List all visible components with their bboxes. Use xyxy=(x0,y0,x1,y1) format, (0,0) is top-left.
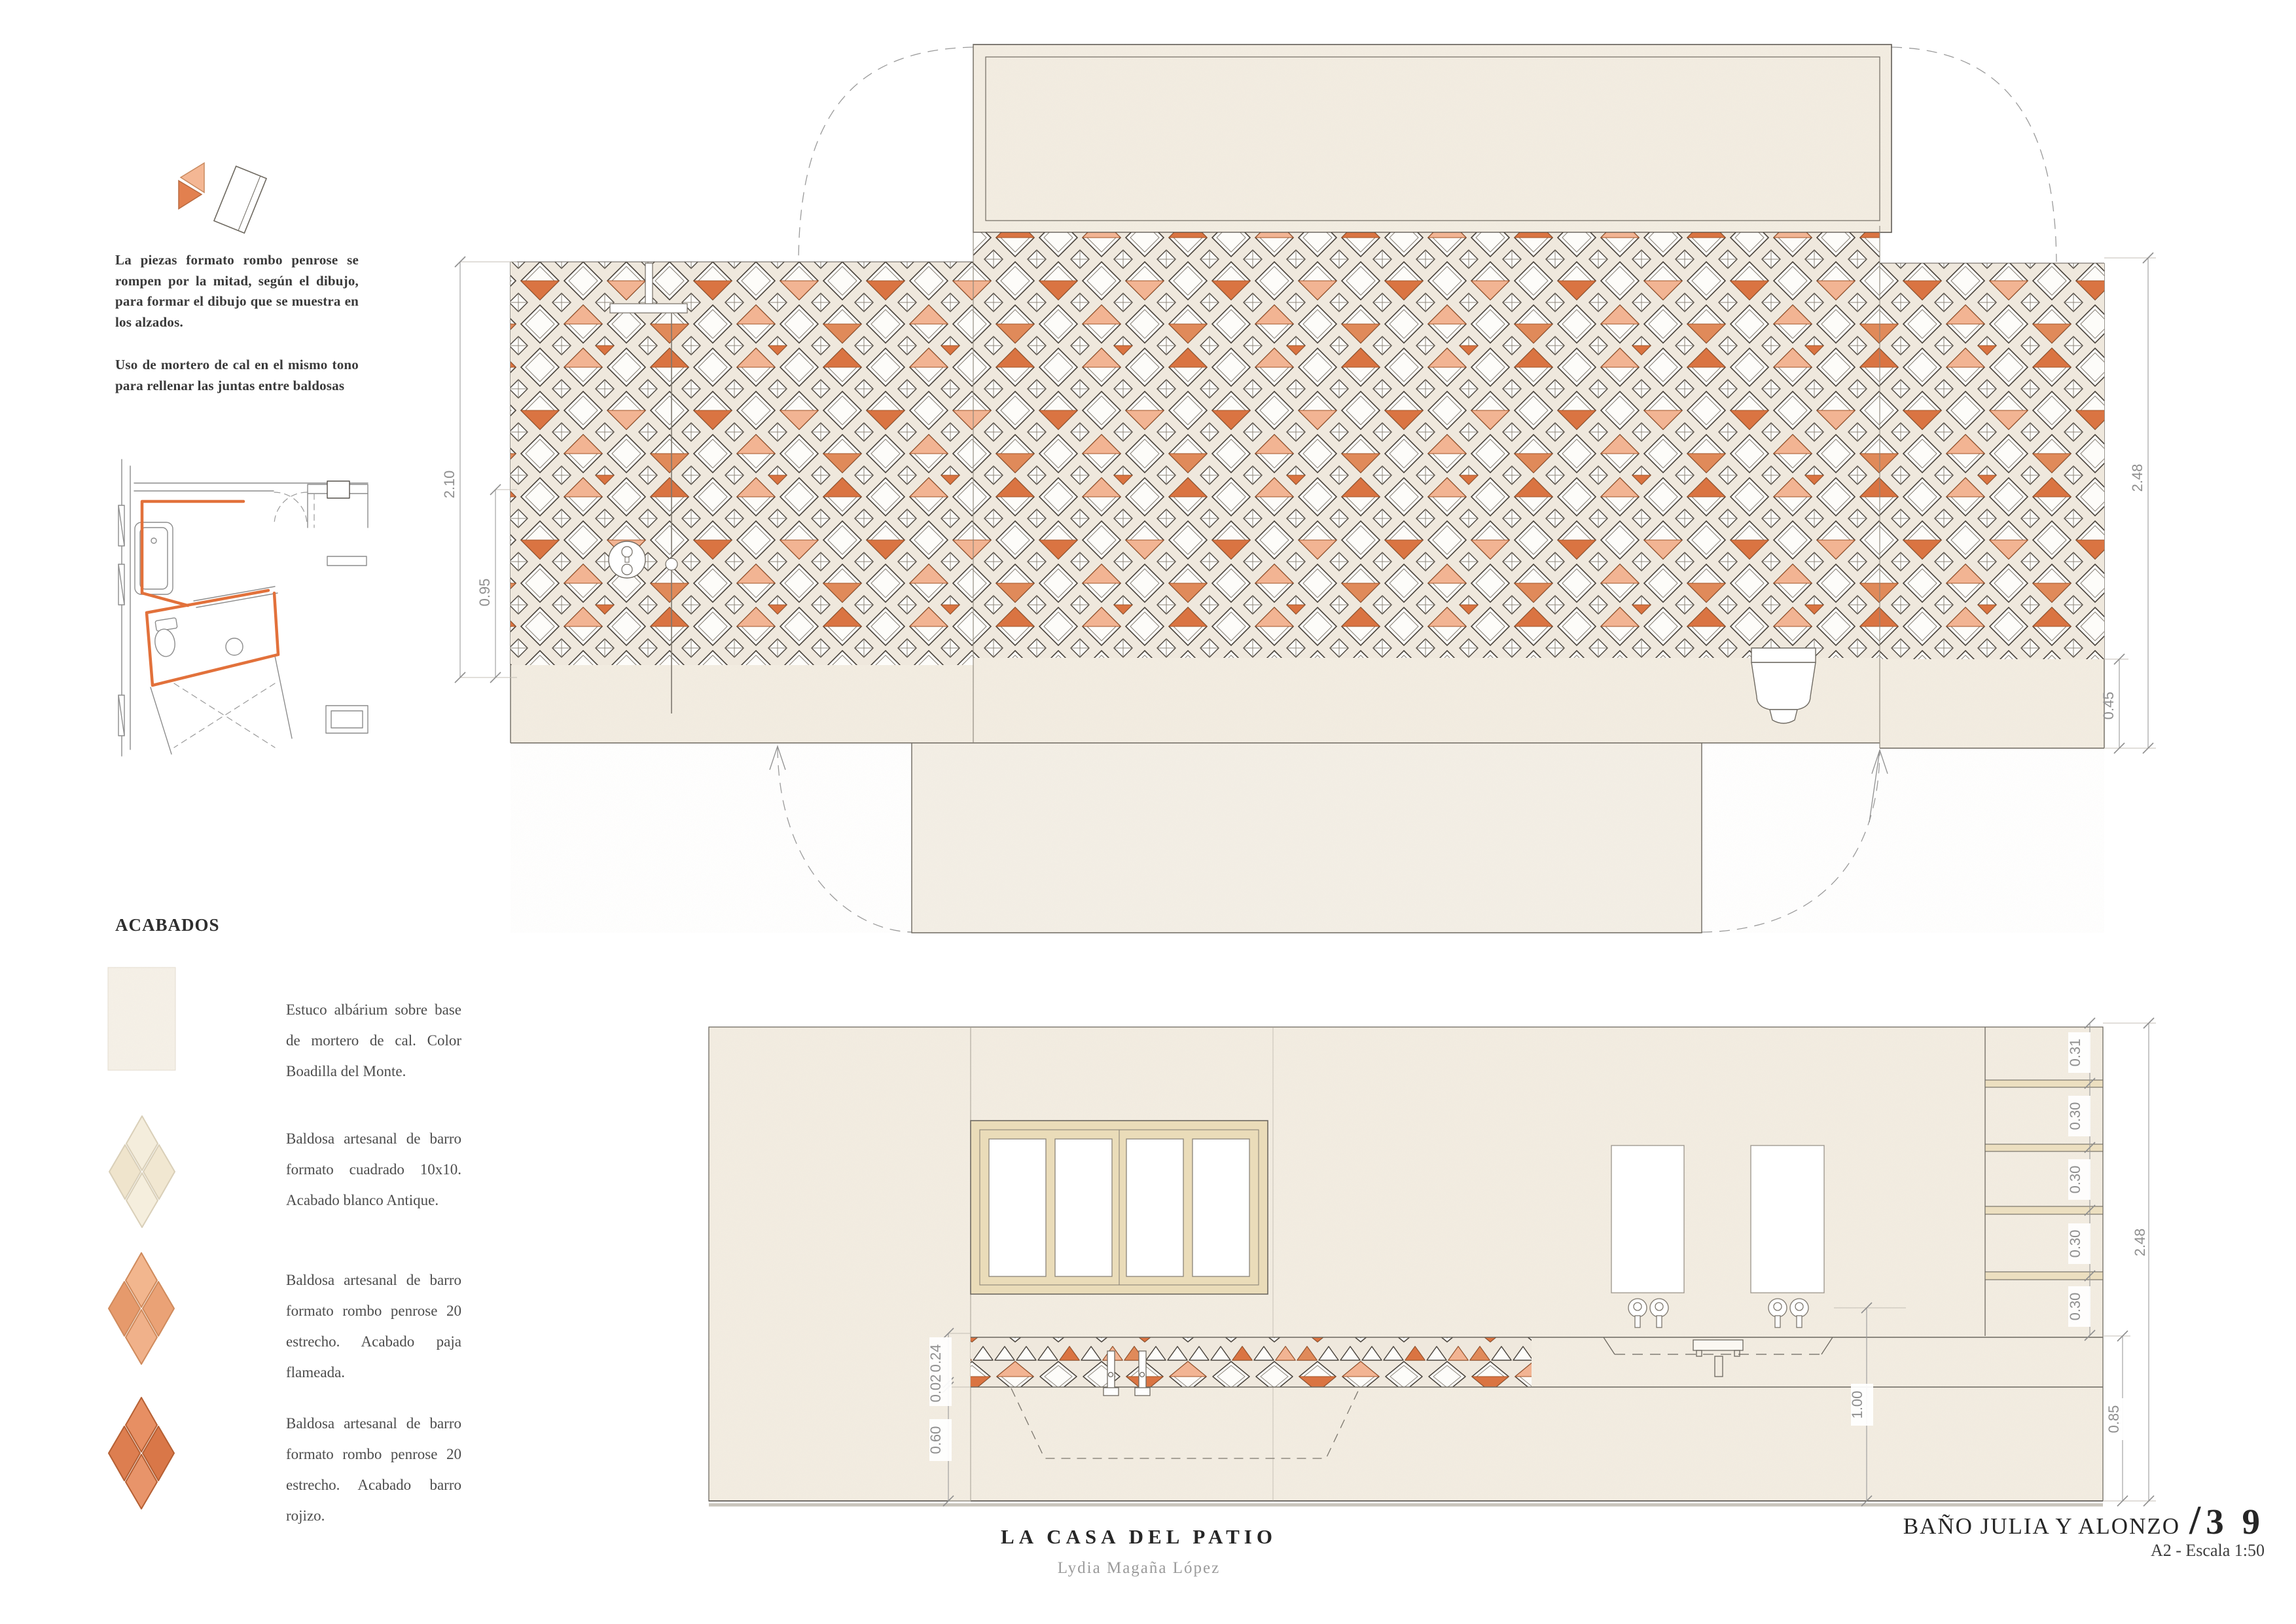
mirror xyxy=(1611,1146,1684,1293)
swatch-paja-tiles xyxy=(109,1253,174,1364)
acabado-item-text: Baldosa artesanal de barro formato cuadr… xyxy=(286,1123,461,1216)
swatch-white-tiles xyxy=(109,1116,175,1227)
presentation-sheet: 2.10 0.95 2.48 0.45 xyxy=(0,0,2296,1624)
sheet-slash: / xyxy=(2189,1503,2200,1540)
footer-project-block: LA CASA DEL PATIO Lydia Magaña López xyxy=(936,1525,1342,1578)
acabado-item-text: Baldosa artesanal de barro formato rombo… xyxy=(286,1265,461,1388)
dim-label: 1.00 xyxy=(1849,1391,1865,1419)
dim-label: 0.30 xyxy=(2067,1166,2083,1194)
dim-label: 2.48 xyxy=(2129,464,2145,492)
dim-label: 2.10 xyxy=(441,471,457,499)
swatch-stucco xyxy=(108,967,175,1070)
acabados-title: ACABADOS xyxy=(115,915,220,935)
dim-label: 0.31 xyxy=(2067,1039,2083,1067)
dim-label: 0.30 xyxy=(2067,1230,2083,1258)
acabado-item-text: Baldosa artesanal de barro formato rombo… xyxy=(286,1408,461,1532)
broken-rhombus-icon xyxy=(179,163,266,233)
dim-label: 0.02 xyxy=(927,1375,944,1403)
window-pane xyxy=(1193,1139,1249,1276)
window-pane xyxy=(1126,1139,1183,1276)
dim-label: 0.24 xyxy=(927,1344,944,1373)
swatch-rojizo-tiles xyxy=(109,1398,174,1509)
note-tiles: La piezas formato rombo penrose se rompe… xyxy=(115,250,359,333)
dim-label: 0.95 xyxy=(476,579,493,607)
acabado-item-text: Estuco albárium sobre base de mortero de… xyxy=(286,994,461,1087)
mirror xyxy=(1751,1146,1824,1293)
window-pane xyxy=(989,1139,1046,1276)
dim-label: 0.30 xyxy=(2067,1293,2083,1321)
sheet-title: BAÑO JULIA Y ALONZO xyxy=(1903,1513,2180,1540)
note-mortar: Uso de mortero de cal en el mismo tono p… xyxy=(115,355,359,396)
dim-label: 2.48 xyxy=(2132,1229,2148,1257)
dim-label: 0.85 xyxy=(2106,1405,2122,1434)
sheet-title-line: BAÑO JULIA Y ALONZO / 3 9 xyxy=(1767,1503,2265,1540)
top-wall-flap xyxy=(973,45,1892,232)
window xyxy=(971,1121,1268,1294)
sheet-number: 3 9 xyxy=(2206,1506,2265,1538)
unfolded-elevation: 2.10 0.95 2.48 0.45 xyxy=(441,45,2156,933)
project-author: Lydia Magaña López xyxy=(936,1559,1342,1578)
front-elevation: 0.31 0.30 0.30 0.30 0.30 0.85 2.48 0.24 … xyxy=(709,1018,2156,1506)
dim-label: 0.45 xyxy=(2100,692,2117,720)
project-title: LA CASA DEL PATIO xyxy=(936,1525,1342,1549)
window-pane xyxy=(1055,1139,1112,1276)
footer-sheet-block: BAÑO JULIA Y ALONZO / 3 9 A2 - Escala 1:… xyxy=(1767,1503,2265,1561)
sheet-format-scale: A2 - Escala 1:50 xyxy=(1767,1541,2265,1561)
dim-label: 0.30 xyxy=(2067,1102,2083,1130)
material-swatches xyxy=(108,967,175,1509)
floor-plan-sketch xyxy=(118,460,368,756)
dim-label: 0.60 xyxy=(927,1426,944,1454)
